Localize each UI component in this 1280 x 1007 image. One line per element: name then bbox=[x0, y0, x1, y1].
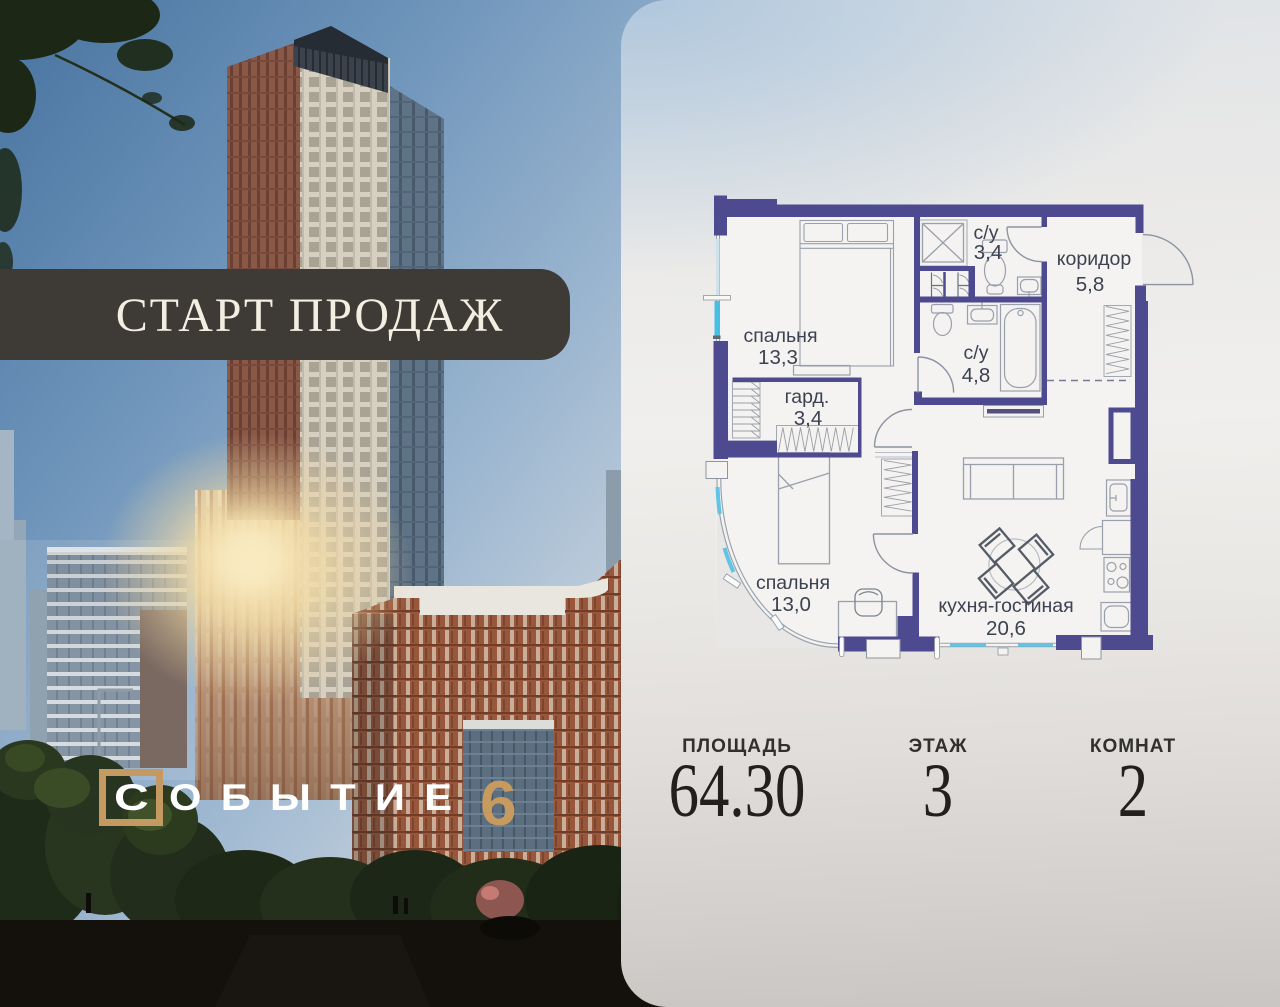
svg-text:13,3: 13,3 bbox=[758, 346, 798, 369]
svg-text:кухня-гостиная: кухня-гостиная bbox=[938, 595, 1073, 617]
svg-text:спальня: спальня bbox=[743, 325, 817, 347]
svg-text:с/у: с/у bbox=[964, 342, 989, 364]
svg-text:коридор: коридор bbox=[1057, 248, 1132, 270]
svg-text:5,8: 5,8 bbox=[1076, 273, 1105, 296]
svg-text:3,4: 3,4 bbox=[794, 407, 823, 430]
svg-text:20,6: 20,6 bbox=[986, 617, 1026, 640]
svg-text:3,4: 3,4 bbox=[974, 241, 1003, 264]
svg-text:гард.: гард. bbox=[785, 386, 830, 408]
svg-text:4,8: 4,8 bbox=[962, 364, 991, 387]
svg-text:13,0: 13,0 bbox=[771, 593, 811, 616]
svg-text:спальня: спальня bbox=[756, 572, 830, 594]
